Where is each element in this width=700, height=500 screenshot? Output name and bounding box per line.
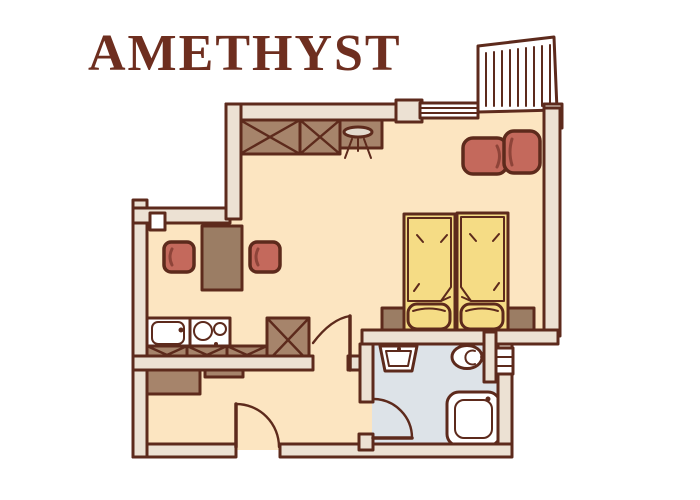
bathroom-window <box>496 348 513 374</box>
wall-bath-left-upper <box>360 344 373 402</box>
floorplan-drawing <box>0 0 700 500</box>
washbasin-tap <box>397 347 401 351</box>
wall-bath-left-lower <box>359 434 373 450</box>
wall-top <box>226 104 400 120</box>
faucet-dot <box>179 328 184 333</box>
dining-table <box>202 226 242 290</box>
sofa <box>463 131 540 174</box>
floorplan-page: AMETHYST <box>0 0 700 500</box>
wall-toilet-stub <box>484 332 496 382</box>
wall-bottom-right <box>280 444 512 457</box>
hall-cabinet <box>147 368 200 394</box>
wall-bedroom-bath <box>362 330 558 344</box>
wardrobe <box>240 120 340 154</box>
wall-upper-left <box>133 208 230 223</box>
shower-drain <box>486 397 491 402</box>
wall-upper-vertical <box>226 104 241 219</box>
stool-seat <box>344 127 372 137</box>
wall-left <box>133 200 147 457</box>
wall-kitchen-band <box>133 356 313 370</box>
corner-post <box>150 213 165 230</box>
balcony <box>478 37 557 112</box>
toilet <box>452 346 482 369</box>
wall-pillar <box>396 100 422 122</box>
wall-right <box>544 108 560 336</box>
balcony-window <box>420 103 478 118</box>
